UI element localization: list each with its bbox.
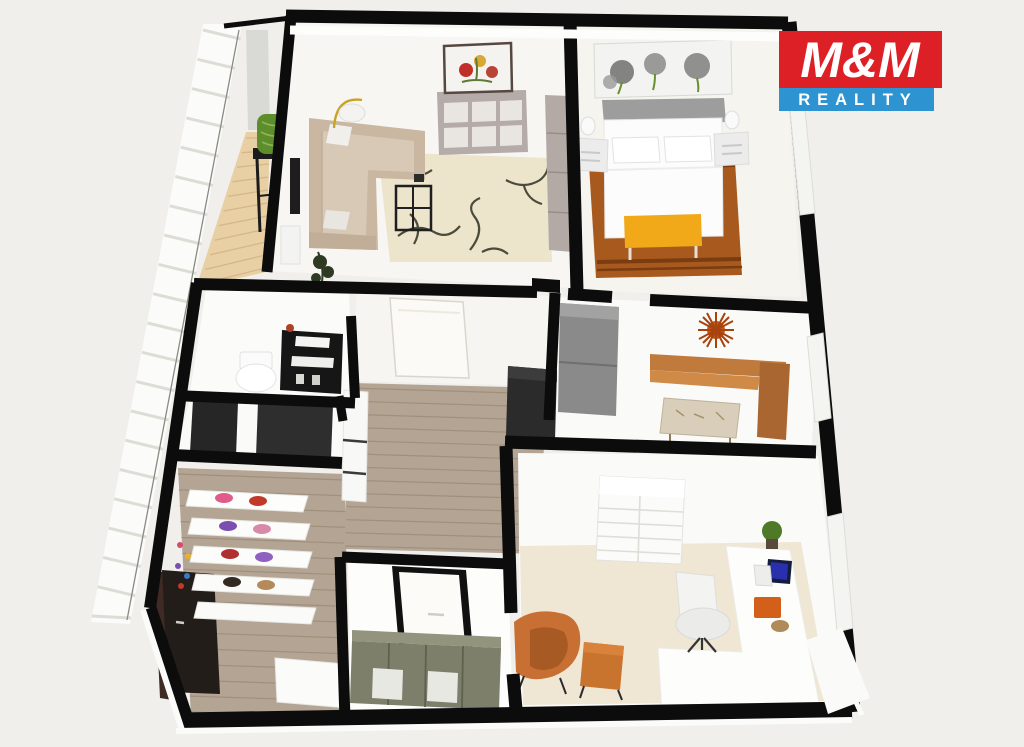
table-lamp	[725, 111, 739, 129]
radiator	[281, 226, 300, 264]
wall-top	[286, 16, 788, 23]
wall-living-bedroom	[570, 21, 577, 291]
black-storage-cart	[280, 324, 343, 394]
white-shelving-unit	[596, 476, 685, 564]
sofa-pillow	[323, 210, 350, 230]
logo-text-mm: M&M	[800, 32, 921, 88]
bedroom	[575, 40, 749, 278]
desk-mat-orange	[754, 597, 781, 618]
wall-nook-top	[342, 557, 510, 564]
dark-appliance-right	[256, 402, 333, 458]
wall-toilet-right	[351, 316, 355, 398]
desk-item-tan	[771, 620, 789, 632]
sofa-pillow	[326, 124, 352, 146]
wall-office-left-a	[506, 446, 511, 613]
olive-sideboard	[350, 630, 501, 710]
flower-painting	[444, 43, 512, 93]
wall-nook-left	[340, 557, 345, 721]
logo-text-reality: REALITY	[798, 91, 918, 109]
wall-office-left-b	[513, 674, 517, 721]
pillow-left	[612, 137, 660, 163]
open-door-leaf	[390, 298, 469, 378]
dark-appliance-left	[190, 400, 238, 456]
wall-kitchen-left	[549, 293, 555, 420]
toilet	[236, 352, 276, 392]
floor-plan-render: M&M REALITY	[0, 0, 1024, 747]
wall-toilet-bottom	[186, 396, 355, 403]
wall-tv	[290, 158, 300, 214]
starburst-wall-decor	[698, 312, 734, 348]
wall-bedroom-bottom-a	[568, 294, 612, 297]
red-jar	[286, 324, 294, 332]
wall-niche-bottom	[172, 455, 342, 463]
pillow-right	[664, 136, 712, 162]
floor-plan-stage: M&M REALITY	[0, 0, 1024, 747]
sideboard	[437, 90, 528, 155]
wall-living-bottom	[194, 284, 537, 292]
fridge	[558, 303, 619, 416]
brand-logo: M&M REALITY	[779, 31, 942, 111]
wall-hall-kitchen-stub	[532, 278, 560, 293]
wall-hall-stub	[339, 396, 343, 421]
utility-niche	[190, 400, 333, 458]
white-counter	[275, 658, 347, 708]
dandelion-artwork	[594, 40, 732, 98]
wall-bedroom-bottom-b	[650, 300, 818, 308]
table-lamp	[581, 117, 595, 135]
